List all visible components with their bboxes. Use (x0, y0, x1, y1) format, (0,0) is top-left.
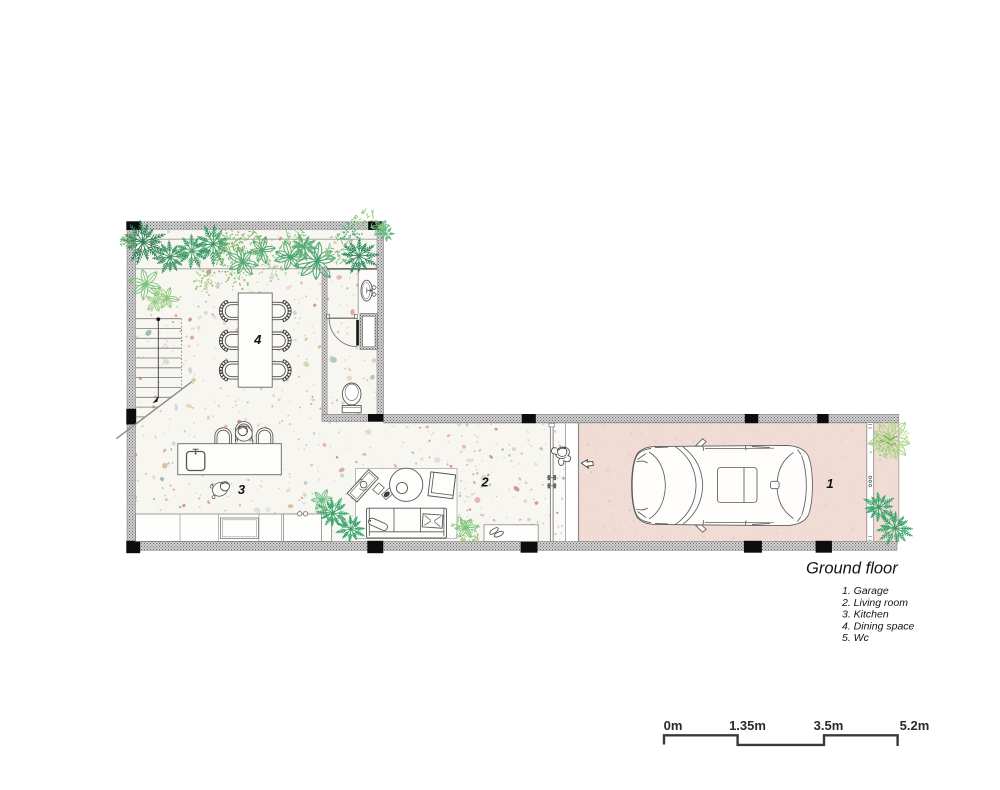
svg-text:5.2m: 5.2m (900, 718, 930, 733)
svg-text:1.35m: 1.35m (729, 718, 766, 733)
svg-text:1: 1 (826, 476, 833, 491)
svg-text:1. Garage: 1. Garage (842, 585, 889, 597)
svg-text:3: 3 (238, 482, 246, 497)
svg-text:4: 4 (253, 332, 262, 347)
svg-text:3. Kitchen: 3. Kitchen (842, 609, 889, 621)
svg-text:0m: 0m (664, 718, 683, 733)
svg-text:4. Dining space: 4. Dining space (842, 620, 915, 632)
svg-text:3.5m: 3.5m (814, 718, 844, 733)
svg-text:2. Living room: 2. Living room (841, 597, 908, 609)
svg-text:5. Wc: 5. Wc (842, 632, 870, 644)
svg-text:2: 2 (480, 475, 489, 490)
svg-text:Ground floor: Ground floor (806, 560, 899, 578)
